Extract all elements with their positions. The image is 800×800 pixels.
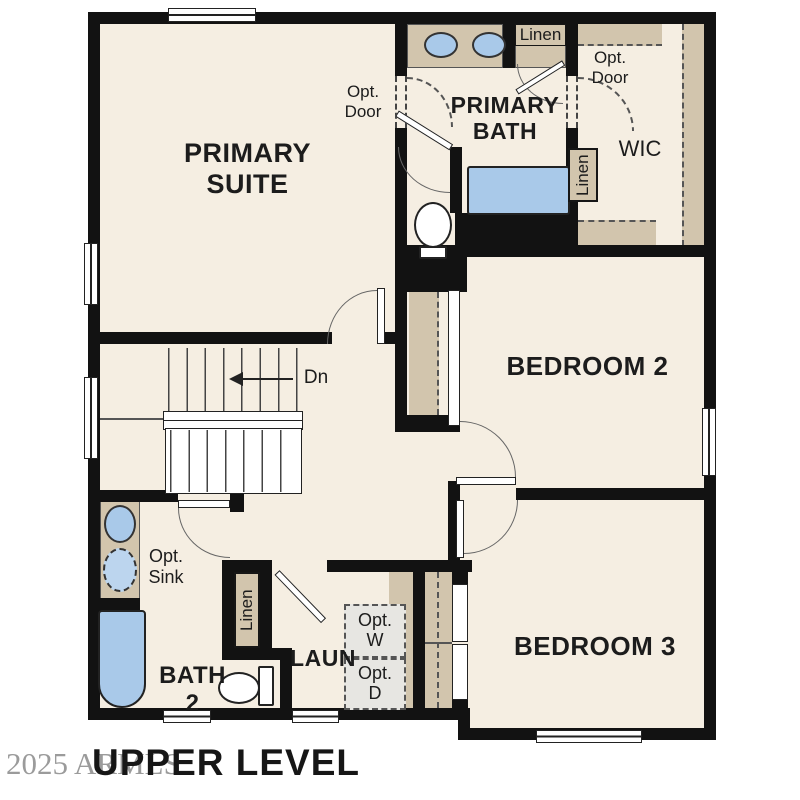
wall — [395, 257, 467, 292]
opt-washer-label: Opt. W — [354, 611, 396, 651]
window — [292, 710, 339, 723]
wall — [566, 24, 578, 76]
wall — [413, 560, 472, 572]
window — [536, 730, 642, 743]
wic-shelf-right — [682, 24, 704, 246]
door-leaf-bedroom2 — [456, 477, 516, 485]
window — [168, 8, 256, 22]
wall — [88, 708, 470, 720]
wall — [222, 560, 234, 660]
wall — [455, 213, 578, 245]
opt-sink-label: Opt. Sink — [136, 546, 196, 587]
linen-label-top: Linen — [515, 24, 566, 46]
bedroom2-closet-wall — [448, 290, 460, 426]
wall — [452, 572, 468, 584]
wall — [704, 12, 716, 740]
room-label-primary-suite: PRIMARY SUITE — [150, 138, 345, 200]
bedroom2-closet-shelf — [409, 292, 439, 415]
room-label-laundry: LAUN — [288, 645, 358, 671]
room-label-primary-bath: PRIMARY BATH — [440, 92, 570, 145]
wall — [450, 147, 462, 213]
wall — [516, 488, 716, 500]
stairs-lower-run — [170, 430, 292, 492]
wall — [413, 560, 425, 708]
room-label-bedroom3: BEDROOM 3 — [500, 632, 690, 662]
closet-door — [452, 644, 468, 700]
stair-direction-arrow — [243, 378, 293, 380]
toilet — [414, 202, 452, 248]
sink — [424, 32, 458, 58]
wic-shelf-bottom — [578, 220, 656, 246]
opt-dryer-label: Opt. D — [354, 664, 396, 704]
bathtub — [98, 610, 146, 708]
closet-door — [452, 584, 468, 642]
toilet-tank — [258, 666, 274, 706]
floor-plan: Opt. W Opt. D Linen Linen Linen PRIMARY … — [0, 0, 800, 800]
closet-rod-dashed-line — [437, 572, 439, 708]
linen-text: Linen — [237, 589, 257, 631]
opt-door-label-wic: Opt. Door — [578, 48, 642, 87]
window — [84, 243, 98, 305]
room-label-bedroom2: BEDROOM 2 — [495, 352, 680, 382]
wall — [452, 700, 468, 708]
room-label-wic: WIC — [610, 136, 670, 161]
door-leaf-bedroom3 — [456, 500, 464, 558]
wic-shelf-top — [578, 24, 662, 46]
optional-sink — [103, 548, 137, 592]
wall — [260, 560, 272, 660]
wall — [222, 648, 292, 660]
linen-label-hall: Linen — [234, 572, 260, 648]
wall — [458, 708, 470, 740]
wall — [395, 24, 407, 76]
window — [702, 408, 716, 476]
room-label-bath2: BATH 2 — [155, 662, 230, 717]
stair-arrow-head-icon — [229, 372, 243, 386]
sink — [104, 505, 136, 543]
linen-text: Linen — [573, 154, 593, 196]
closet-divider-line — [425, 642, 452, 644]
bathtub — [467, 166, 570, 215]
sink — [472, 32, 506, 58]
opt-door-label-bath: Opt. Door — [334, 82, 392, 121]
page-title: UPPER LEVEL — [92, 742, 360, 784]
linen-label-wic: Linen — [568, 148, 598, 202]
window — [84, 377, 98, 459]
floor-area-bedroom3 — [470, 700, 704, 728]
door-leaf-primary-suite — [377, 288, 385, 344]
linen-text: Linen — [520, 25, 562, 45]
stairs-down-label: Dn — [298, 367, 334, 389]
wall — [88, 332, 332, 344]
door-leaf-bath2 — [178, 500, 230, 508]
stair-landing-line — [100, 418, 164, 420]
toilet-tank — [419, 246, 447, 259]
